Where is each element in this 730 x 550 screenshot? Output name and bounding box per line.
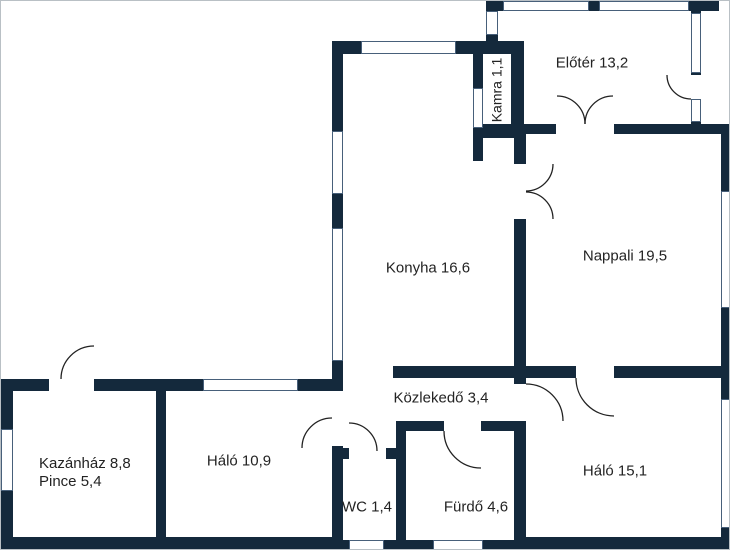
- door-arc-halo-nagy-left: [526, 384, 563, 421]
- room-label-kamra: Kamra 1,1: [489, 58, 506, 123]
- room-label-eloter: Előtér 13,2: [556, 55, 629, 72]
- room-label-wc: WC 1,4: [342, 499, 392, 516]
- room-label-kozlekedo: Közlekedő 3,4: [393, 390, 488, 407]
- door-arc-eloter-double-right: [585, 96, 613, 124]
- door-arc-konyha-nappali-lower: [526, 192, 553, 219]
- room-label-konyha: Konyha 16,6: [386, 260, 470, 277]
- room-label-halo-kicsi: Háló 10,9: [207, 453, 271, 470]
- room-label-pince: Pince 5,4: [39, 473, 102, 490]
- door-arc-furdo: [444, 431, 481, 468]
- floorplan-canvas: Előtér 13,2 Kamra 1,1 Konyha 16,6 Nappal…: [0, 0, 730, 550]
- room-label-kazanhaz: Kazánház 8,8: [39, 455, 131, 472]
- room-label-halo-nagy: Háló 15,1: [583, 463, 647, 480]
- room-label-nappali: Nappali 19,5: [583, 248, 667, 265]
- door-arc-konyha-nappali-upper: [526, 164, 553, 191]
- door-arc-entrance: [667, 75, 691, 99]
- door-arc-eloter-double-left: [557, 96, 585, 124]
- room-label-furdo: Fürdő 4,6: [444, 499, 508, 516]
- door-arc-wc: [349, 423, 377, 451]
- door-arc-kazanhaz-exterior: [61, 346, 94, 379]
- door-arc-halo-nagy-top: [576, 378, 614, 416]
- door-arc-halo-kicsi: [302, 418, 332, 448]
